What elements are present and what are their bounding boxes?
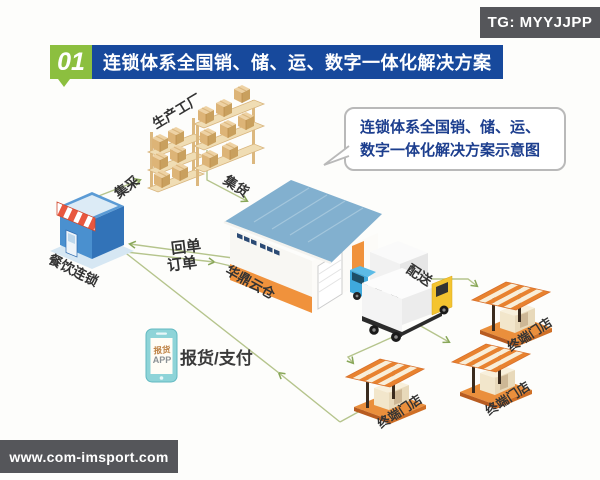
diagram-canvas — [0, 0, 600, 480]
callout-line2: 数字一体化解决方案示意图 — [360, 139, 564, 162]
report-pay-label: 报货/支付 — [180, 344, 300, 369]
report-pay-branch — [340, 411, 360, 422]
order-label: 订单 — [163, 251, 201, 276]
page: TG: MYYJJPP 01 连锁体系全国销、储、运、数字一体化解决方案 — [0, 0, 600, 480]
app-screen-label-line2: APP — [151, 355, 173, 365]
report-pay-arrow — [279, 373, 340, 422]
delivery-arrow-2 — [419, 325, 449, 342]
callout-tail — [322, 145, 350, 167]
callout-bubble: 连锁体系全国销、储、运、 数字一体化解决方案示意图 — [344, 107, 566, 171]
callout-line1: 连锁体系全国销、储、运、 — [360, 116, 564, 139]
watermark: www.com-imsport.com — [0, 440, 178, 473]
